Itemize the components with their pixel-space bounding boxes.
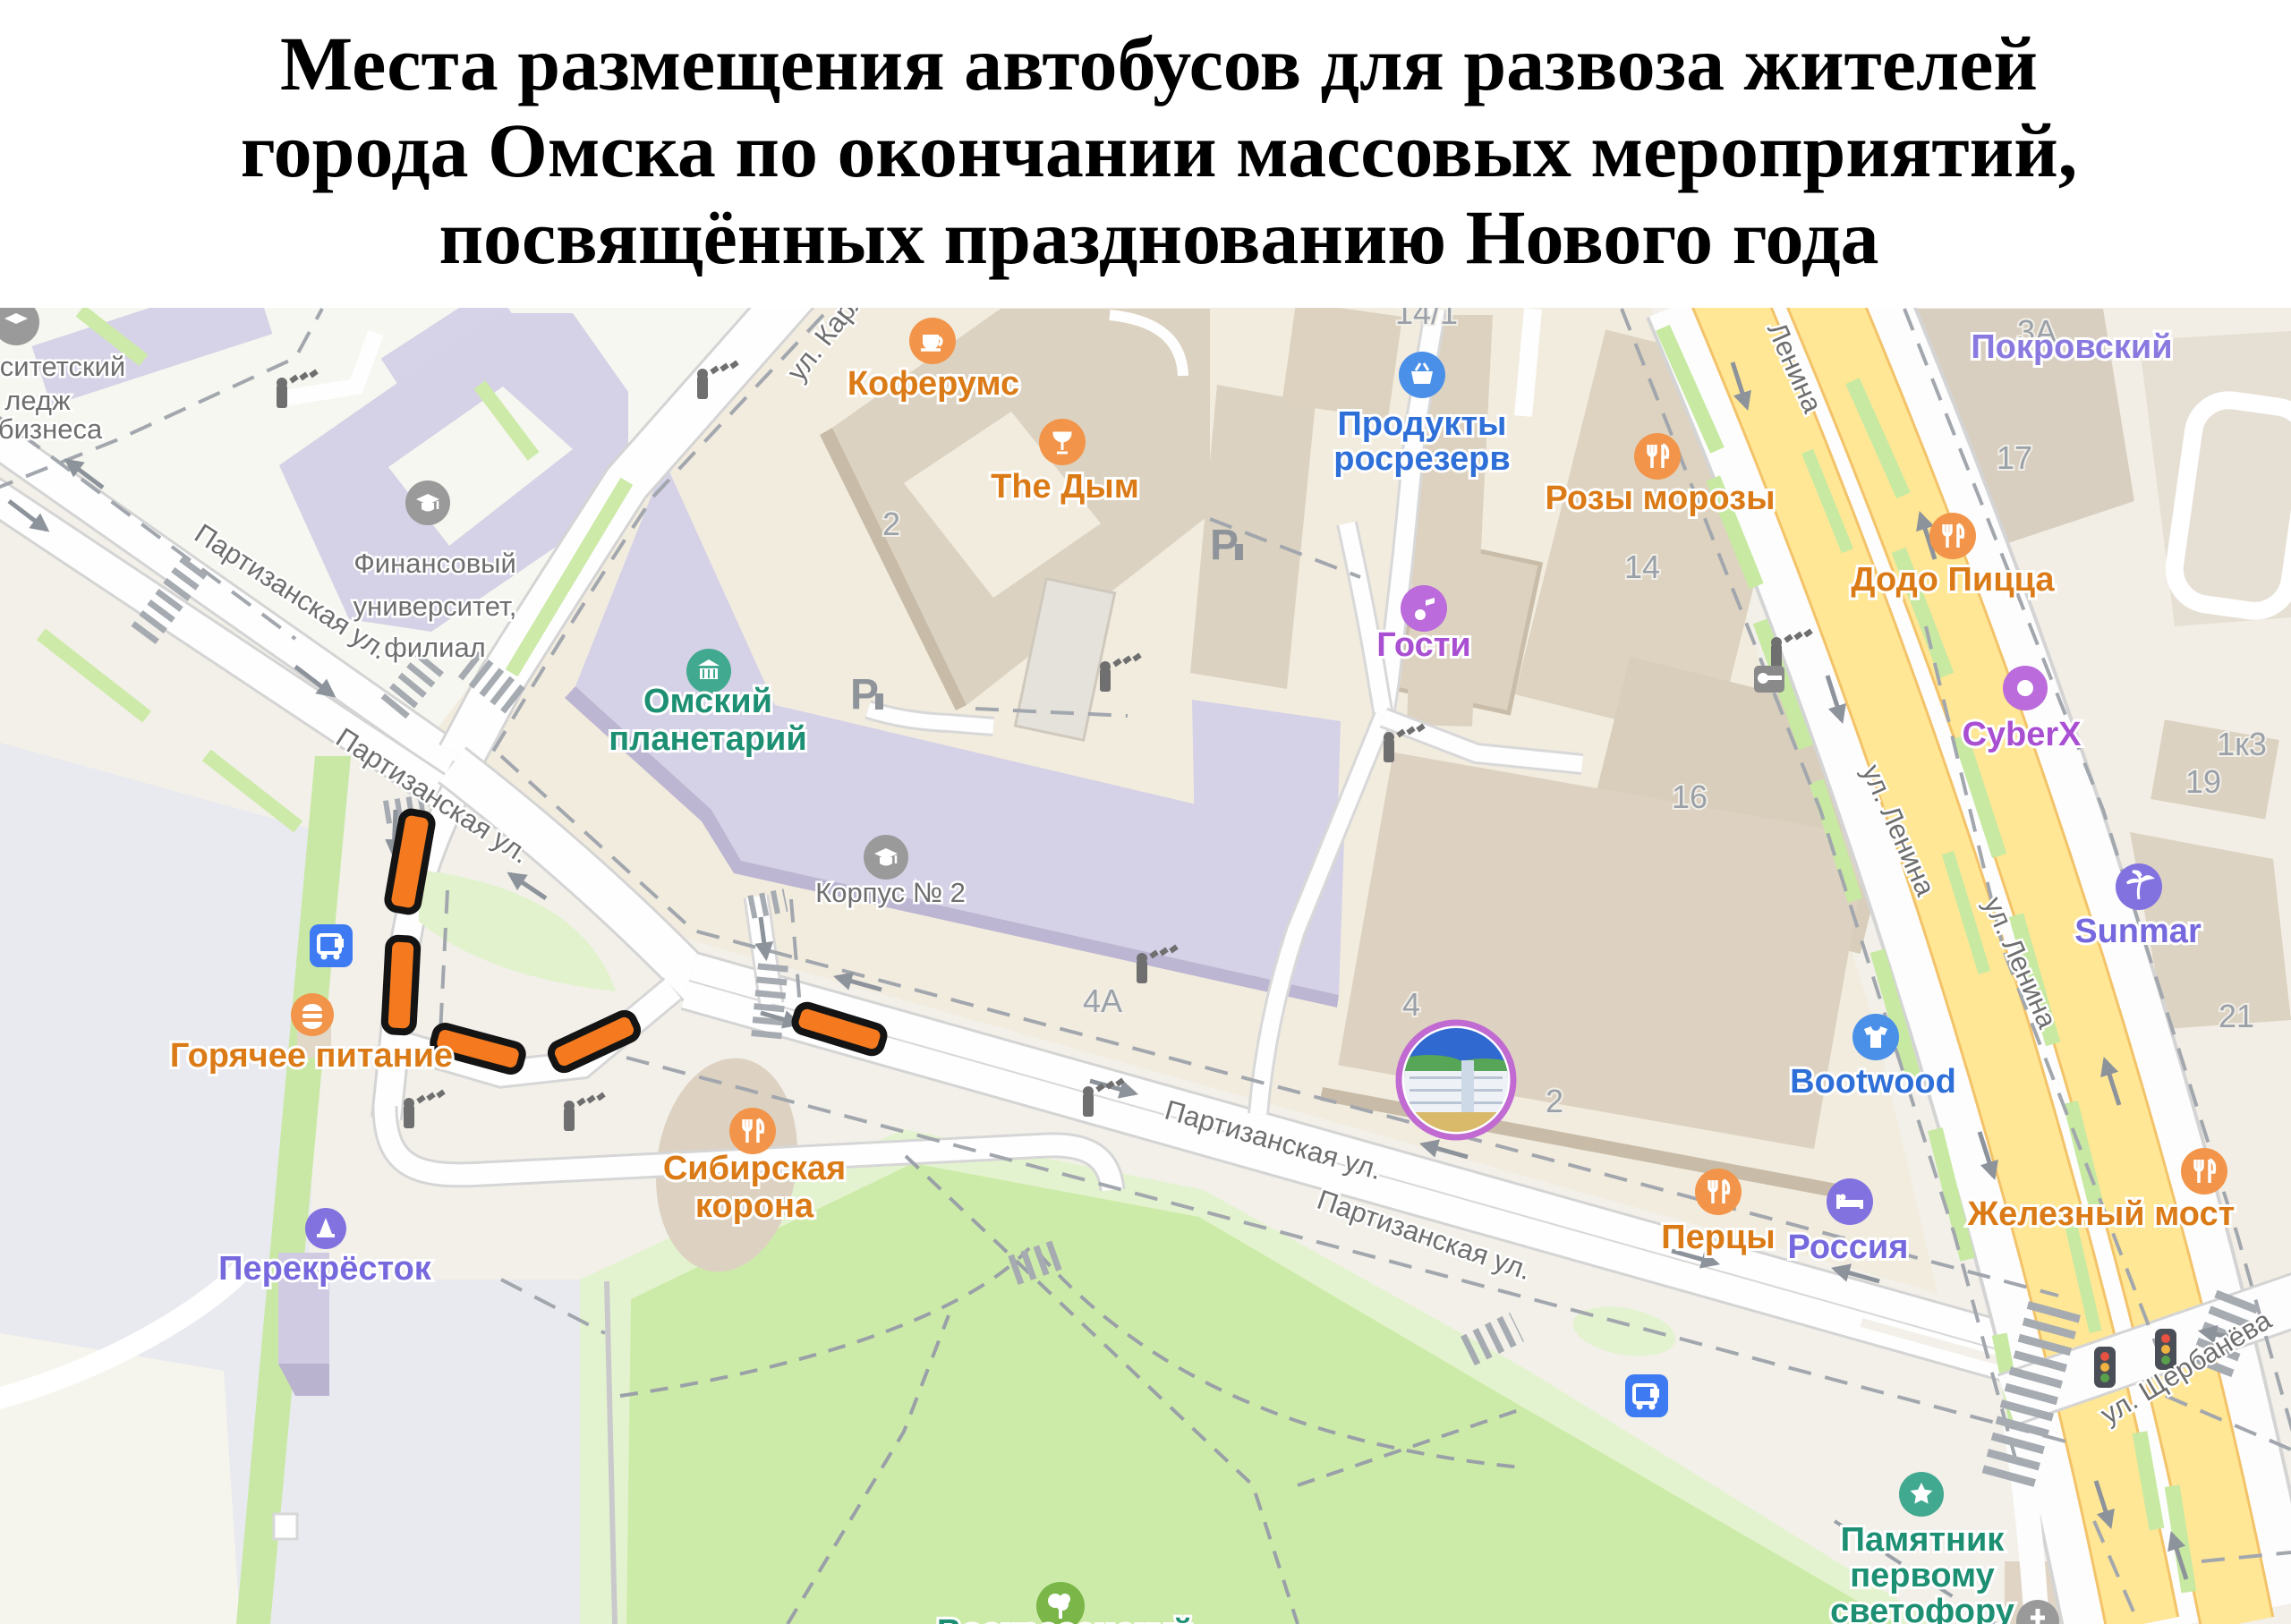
- svg-text:4А: 4А: [1083, 982, 1122, 1019]
- svg-text:21: 21: [2219, 998, 2254, 1034]
- svg-text:Покровский: Покровский: [1971, 328, 2172, 366]
- svg-text:корона: корона: [695, 1187, 814, 1225]
- svg-text:ситетский: ситетский: [0, 351, 125, 382]
- svg-text:14/1: 14/1: [1395, 294, 1458, 331]
- svg-text:Корпус № 2: Корпус № 2: [815, 877, 966, 908]
- svg-text:Омский: Омский: [643, 683, 772, 720]
- svg-text:P: P: [1210, 522, 1239, 569]
- svg-text:Продукты: Продукты: [1337, 405, 1506, 443]
- svg-text:Додо Пицца: Додо Пицца: [1851, 561, 2055, 599]
- svg-text:Bootwood: Bootwood: [1790, 1063, 1956, 1101]
- svg-text:Sunmar: Sunmar: [2074, 913, 2202, 950]
- svg-text:14: 14: [1624, 548, 1660, 585]
- svg-text:университет,: университет,: [353, 591, 517, 622]
- svg-text:Горячее питание: Горячее питание: [170, 1037, 453, 1075]
- svg-text:Розы морозы: Розы морозы: [1545, 480, 1775, 517]
- svg-text:Коферумс: Коферумс: [847, 365, 1019, 403]
- svg-text:Памятник: Памятник: [1841, 1521, 2006, 1559]
- svg-text:ледж: ледж: [4, 385, 71, 416]
- svg-text:Россия: Россия: [1788, 1229, 1909, 1266]
- svg-text:бизнеса: бизнеса: [0, 413, 103, 445]
- svg-text:Перекрёсток: Перекрёсток: [218, 1250, 432, 1288]
- svg-text:Перцы: Перцы: [1661, 1219, 1775, 1256]
- svg-text:17: 17: [1997, 439, 2032, 476]
- svg-text:2: 2: [1546, 1083, 1563, 1119]
- svg-text:росрезерв: росрезерв: [1333, 440, 1511, 478]
- svg-text:P: P: [850, 671, 879, 718]
- svg-text:светофору: светофору: [1830, 1593, 2014, 1624]
- svg-text:The Дым: The Дым: [991, 468, 1139, 506]
- svg-text:16: 16: [1672, 778, 1708, 815]
- svg-text:CyberX: CyberX: [1962, 716, 2082, 753]
- svg-text:Воскресенский: Воскресенский: [937, 1613, 1193, 1624]
- svg-text:планетарий: планетарий: [609, 720, 807, 758]
- svg-text:4: 4: [1402, 986, 1420, 1023]
- svg-text:филиал: филиал: [384, 632, 486, 663]
- svg-text:1к3: 1к3: [2217, 726, 2267, 762]
- svg-text:Сибирская: Сибирская: [663, 1150, 846, 1187]
- svg-text:Гости: Гости: [1376, 626, 1470, 664]
- svg-text:первому: первому: [1850, 1557, 1995, 1594]
- svg-text:2: 2: [882, 506, 900, 542]
- svg-text:Железный мост: Железный мост: [1967, 1195, 2236, 1233]
- svg-text:Финансовый: Финансовый: [353, 548, 516, 579]
- svg-text:19: 19: [2185, 763, 2221, 800]
